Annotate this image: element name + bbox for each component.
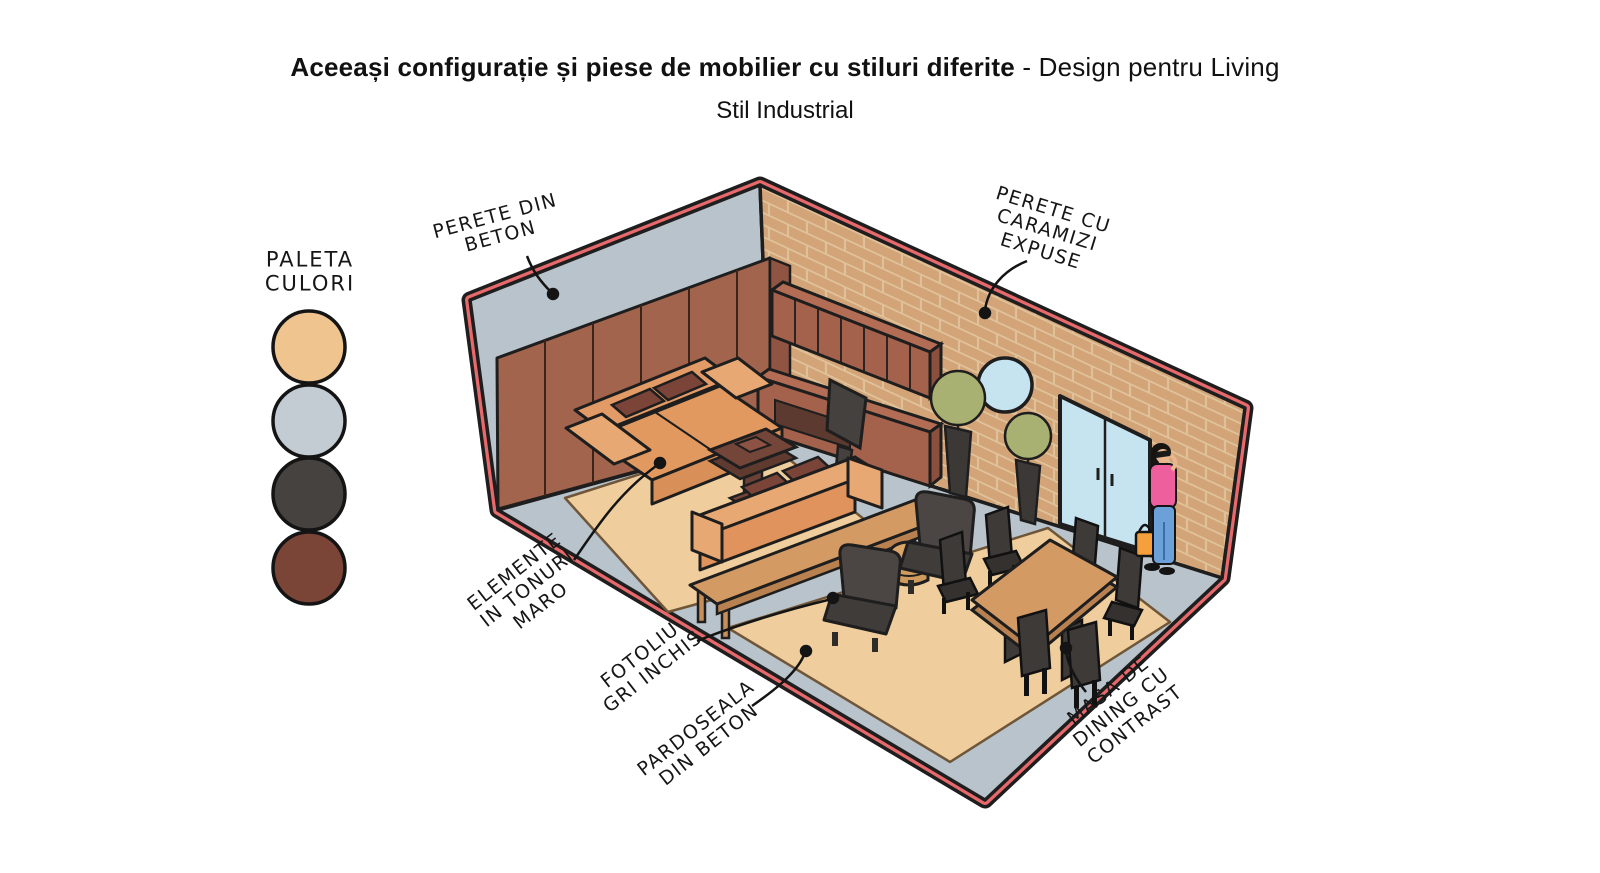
chair-leg (1042, 668, 1047, 694)
leader-dot (655, 458, 665, 468)
torso (1150, 464, 1176, 508)
chair-leg (1108, 620, 1112, 636)
industrial-living-diagram: Aceeași configurație și piese de mobilie… (0, 0, 1600, 873)
plant-foliage (1005, 413, 1051, 459)
leader-dot (801, 646, 811, 656)
palette-label: PALETA CULORI (265, 248, 355, 295)
shoe (1144, 563, 1160, 571)
chair-leg (1130, 624, 1134, 640)
armchair-leg (872, 638, 878, 652)
chair-back (1068, 622, 1100, 688)
leader-dot (828, 593, 838, 603)
round-mirror (978, 358, 1032, 412)
palette-swatch-gray (273, 385, 345, 457)
armchair-leg (832, 632, 838, 646)
chair-leg (942, 598, 946, 614)
leader-dot (980, 308, 990, 318)
chair-leg (966, 592, 970, 610)
room-illustration (0, 0, 1600, 873)
chair-leg (1024, 674, 1029, 696)
planter (945, 426, 971, 497)
palette-swatch-brown (273, 532, 345, 604)
chair-back (1018, 610, 1050, 676)
shoe (1159, 567, 1175, 575)
leader-dot (1061, 643, 1071, 653)
palette-swatch-tan (273, 311, 345, 383)
armchair-leg (908, 580, 914, 594)
handbag (1136, 532, 1154, 556)
color-palette (273, 311, 345, 604)
palette-swatch-dark (273, 458, 345, 530)
console-side (930, 424, 941, 486)
planter (1016, 460, 1040, 524)
plant-foliage (931, 371, 985, 425)
leader-dot (548, 289, 558, 299)
